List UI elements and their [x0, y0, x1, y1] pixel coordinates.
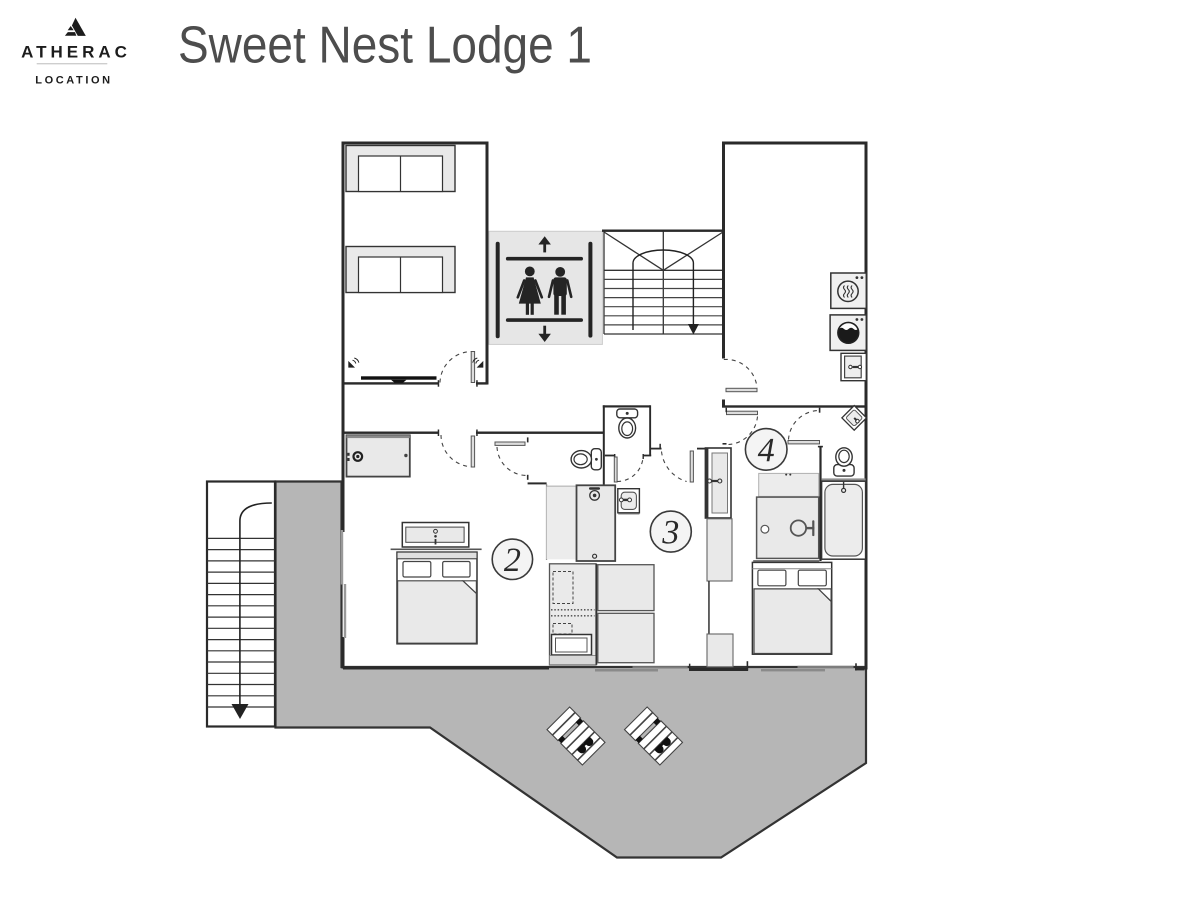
- svg-text:LOCATION: LOCATION: [35, 75, 112, 87]
- svg-text:Sweet Nest Lodge 1: Sweet Nest Lodge 1: [178, 17, 592, 75]
- svg-text:ATHERAC: ATHERAC: [21, 43, 131, 62]
